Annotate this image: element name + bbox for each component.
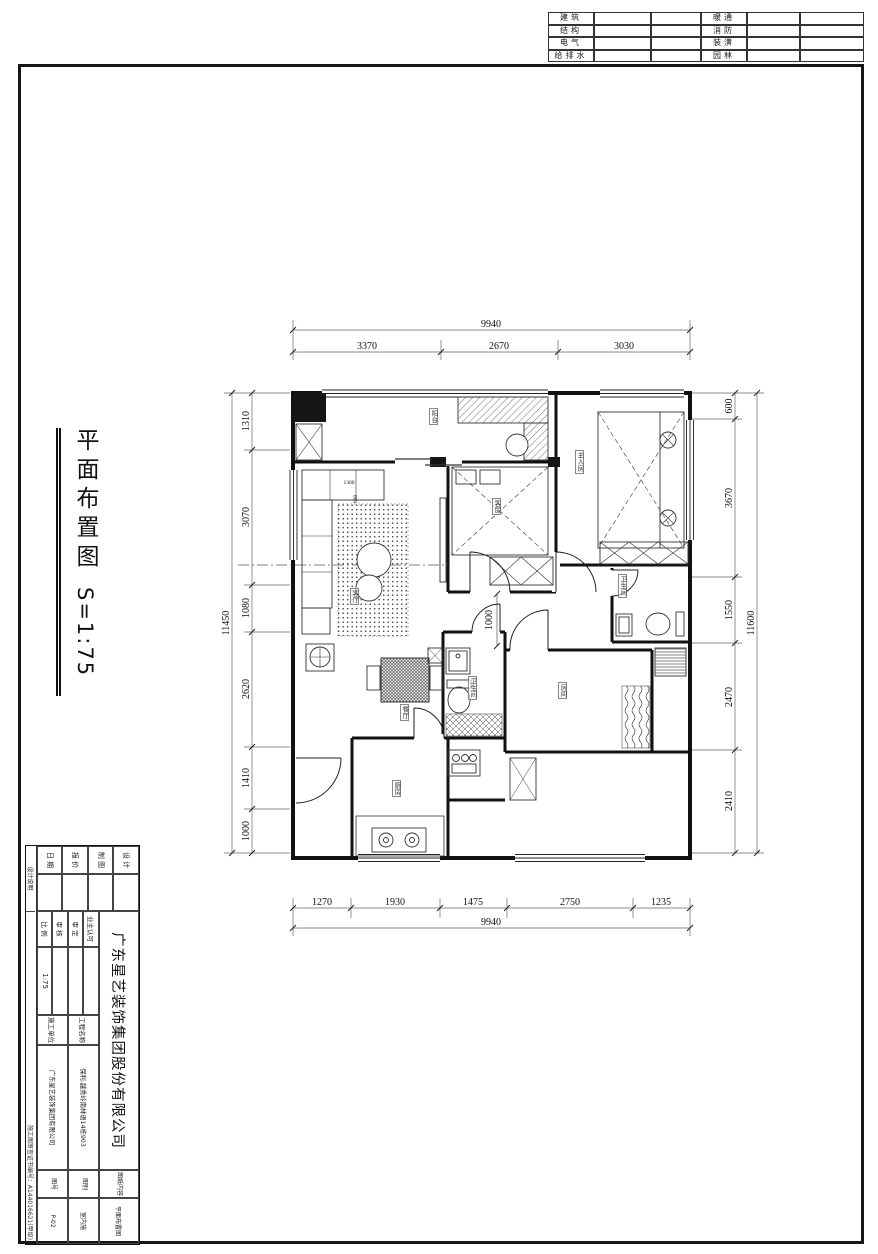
side-table — [302, 608, 330, 634]
dim-label: 1310 — [241, 411, 252, 431]
sink-unit — [448, 750, 480, 776]
tb-label: 审 核 — [53, 911, 69, 947]
tb-label: 制 图 — [88, 846, 114, 874]
title-block-sheet-col: 图纸内容平面布置图 图别室内施 图号P-02 — [37, 1170, 139, 1244]
room-label-dining: 餐厅 — [400, 704, 409, 721]
entry-door — [296, 758, 341, 803]
cabinet — [655, 648, 686, 676]
curtain-wardrobe — [622, 686, 650, 748]
bedroom3-door — [510, 610, 548, 650]
bathroom2-fixtures — [616, 612, 684, 636]
dim-label: 2410 — [724, 791, 735, 811]
dim-label: 11600 — [746, 611, 757, 636]
master-bed — [598, 412, 684, 548]
coffee-table — [357, 543, 391, 577]
service-balcony — [510, 758, 536, 800]
title-block-project-col: 工程名称保利.越秀岭南林语14栋903 施工单位广东星艺装饰集团有限公司 — [37, 1015, 99, 1170]
dim-label: 1300 — [344, 480, 355, 486]
dim-label: 1550 — [724, 600, 735, 620]
content-value: 平面布置图 — [99, 1198, 139, 1244]
room-label-balcony: 阳台 — [429, 408, 438, 425]
toilet-tank — [676, 612, 684, 636]
wardrobe-hatch — [458, 397, 548, 423]
guest-wardrobe — [490, 557, 553, 585]
dim-label: 1475 — [463, 897, 483, 908]
dim-label: 9940 — [481, 917, 501, 928]
tb-label: 日 期 — [37, 846, 63, 874]
wall-pier — [548, 457, 560, 467]
builder-value: 广东星艺装饰集团有限公司 — [37, 1045, 68, 1170]
rug — [338, 504, 408, 636]
window-bottom-balcony — [515, 854, 645, 862]
coffee-table-small — [356, 575, 382, 601]
builder-label: 施工单位 — [37, 1015, 68, 1045]
window-kitchen-bottom — [358, 854, 440, 862]
title-block: 设 计 制 图 报 价 日 期 广东星艺装饰集团股份有限公司 业主认可 审 定 … — [25, 845, 140, 1245]
content-label: 图纸内容 — [99, 1170, 139, 1198]
dim-label: 3370 — [357, 341, 377, 352]
sheet-number-label: 图号 — [37, 1170, 68, 1198]
title-block-edge-strip: 设计说明 施工图审查证书编号：A144016621(甲级) — [26, 846, 37, 1244]
project-name-label: 工程名称 — [68, 1015, 99, 1045]
dim-label: 11450 — [221, 611, 232, 636]
stove — [372, 828, 426, 852]
dim-label: 3030 — [614, 341, 634, 352]
tb-blank — [37, 874, 63, 911]
dim-label: 2750 — [560, 897, 580, 908]
master-door — [556, 552, 596, 592]
certificate-number: 施工图审查证书编号：A144016621(甲级) — [27, 912, 36, 1244]
room-label-master: 主人房 — [575, 450, 584, 474]
washbasin — [446, 648, 470, 674]
dim-label: 1270 — [312, 897, 332, 908]
balcony-fittings — [296, 397, 548, 465]
tb-label: 设 计 — [114, 846, 140, 874]
window-master-right — [686, 420, 694, 540]
scale-value: 1:75 — [37, 947, 53, 1015]
dim-label: 1930 — [385, 897, 405, 908]
dim-label: 1080 — [241, 598, 252, 618]
edge-note-top: 设计说明 — [27, 846, 36, 912]
company-name: 广东星艺装饰集团股份有限公司 — [99, 911, 139, 1170]
tb-blank — [114, 874, 140, 911]
category-value: 室内施 — [68, 1198, 99, 1244]
basin-circle — [506, 434, 528, 456]
tv-cabinet — [440, 498, 446, 582]
dining-set — [367, 658, 443, 702]
dim-label: 3070 — [241, 507, 252, 527]
kitchen-door — [414, 708, 444, 738]
tb-label: 审 定 — [68, 911, 84, 947]
room-label-bath1: 卫生间 — [468, 676, 477, 700]
ac-unit — [306, 644, 334, 671]
window-top — [322, 389, 548, 397]
dim-label: 9940 — [481, 319, 501, 330]
room-label-room: 房间 — [558, 682, 567, 699]
room-label-kitchen: 厨房 — [392, 780, 401, 797]
room-label-guestroom: 客房 — [492, 498, 501, 515]
sheet-number-value: P-02 — [37, 1198, 68, 1244]
category-label: 图别 — [68, 1170, 99, 1198]
toilet-bowl — [646, 613, 670, 635]
dining-table — [381, 658, 429, 702]
dim-label: 1000 — [241, 821, 252, 841]
room-label-bath2: 卫生间 — [618, 574, 627, 598]
dim-label: 3670 — [724, 488, 735, 508]
dim-label: 1410 — [241, 768, 252, 788]
dim-label: 2470 — [724, 687, 735, 707]
title-block-signature-col: 设 计 制 图 报 价 日 期 — [37, 846, 139, 911]
tb-blank — [63, 874, 89, 911]
chair — [430, 666, 443, 690]
tb-blank — [88, 874, 114, 911]
tb-label: 报 价 — [63, 846, 89, 874]
chair — [367, 666, 380, 690]
dim-label: 1235 — [651, 897, 671, 908]
tb-blank — [68, 947, 84, 1015]
title-block-approval-col: 业主认可 审 定 审 核 比 例1:75 — [37, 911, 99, 1015]
shower-floor — [446, 714, 502, 736]
dim-label: 600 — [353, 495, 359, 504]
tb-blank — [53, 947, 69, 1015]
dim-label: 1000 — [484, 610, 495, 630]
toilet-bowl — [448, 687, 470, 713]
tb-blank — [84, 947, 100, 1015]
project-name-value: 保利.越秀岭南林语14栋903 — [68, 1045, 99, 1170]
counter — [356, 816, 444, 856]
column-block — [293, 393, 326, 422]
bedroom3-fittings — [622, 648, 686, 748]
kitchen-fittings — [356, 750, 480, 856]
dim-label: 2620 — [241, 679, 252, 699]
tb-label: 业主认可 — [84, 911, 100, 947]
window-master-top — [600, 389, 684, 397]
bathroom1-fixtures — [428, 648, 502, 736]
drawing-sheet: { "discipline_table": { "left_labels": [… — [0, 0, 878, 1254]
window-living-left — [289, 470, 297, 560]
dim-label: 600 — [724, 399, 735, 414]
room-label-living: 客厅 — [350, 588, 359, 605]
tb-label: 比 例 — [37, 911, 53, 947]
dim-label: 2670 — [489, 341, 509, 352]
